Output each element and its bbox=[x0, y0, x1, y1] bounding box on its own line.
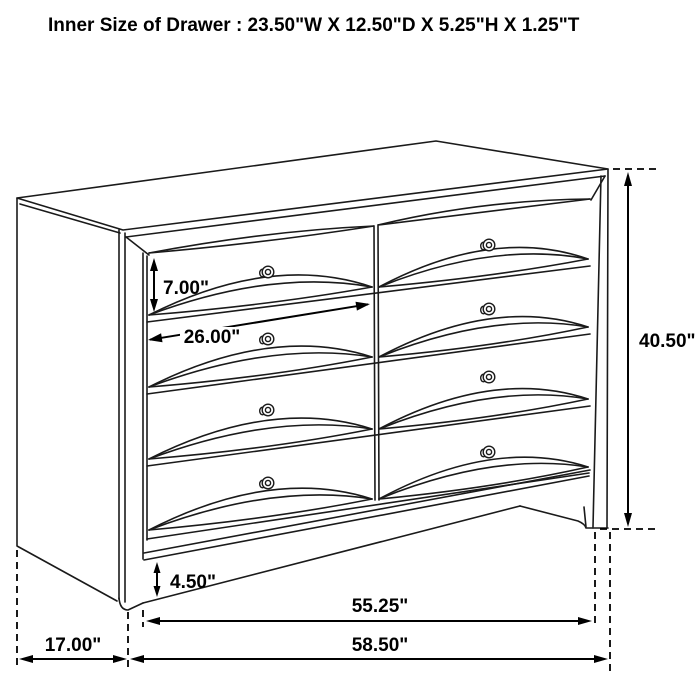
dim-overall-width: 58.50" bbox=[130, 635, 608, 663]
drawer-knob-icon bbox=[260, 266, 274, 278]
dimension-diagram-page: Inner Size of Drawer : 23.50"W X 12.50"D… bbox=[0, 0, 700, 700]
dresser-top-face bbox=[17, 141, 608, 230]
dim-drawer-front-width: 26.00" bbox=[148, 302, 370, 348]
drawer-front-carvings bbox=[149, 247, 588, 530]
page-title: Inner Size of Drawer : 23.50"W X 12.50"D… bbox=[48, 15, 580, 36]
dim-overall-width-label: 58.50" bbox=[352, 635, 409, 656]
drawer-knob-icon bbox=[260, 477, 274, 489]
dim-drawer-front-width-label: 26.00" bbox=[184, 327, 241, 348]
dim-base-height: 4.50" bbox=[154, 562, 217, 597]
drawer-knob-icon bbox=[260, 333, 274, 345]
drawer-knobs bbox=[260, 239, 495, 489]
dresser-side-panel bbox=[17, 198, 117, 601]
dresser-dimension-diagram: Inner Size of Drawer : 23.50"W X 12.50"D… bbox=[0, 0, 700, 700]
drawer-knob-icon bbox=[481, 446, 495, 458]
dim-front-span: 55.25" bbox=[146, 596, 592, 625]
drawer-knob-icon bbox=[260, 404, 274, 416]
drawer-knob-icon bbox=[481, 303, 495, 315]
dim-overall-height: 40.50" bbox=[624, 172, 696, 527]
dim-depth-label: 17.00" bbox=[45, 635, 102, 656]
drawer-knob-icon bbox=[481, 371, 495, 383]
dresser-carcass-drawing bbox=[17, 141, 608, 610]
right-foot bbox=[520, 506, 593, 528]
drawer-knob-icon bbox=[481, 239, 495, 251]
left-foot bbox=[119, 598, 143, 610]
dim-base-height-label: 4.50" bbox=[170, 572, 216, 593]
dim-depth: 17.00" bbox=[19, 635, 127, 663]
dim-overall-height-label: 40.50" bbox=[639, 331, 696, 352]
dim-drawer-front-height-label: 7.00" bbox=[163, 278, 209, 299]
dim-front-span-label: 55.25" bbox=[352, 596, 409, 617]
